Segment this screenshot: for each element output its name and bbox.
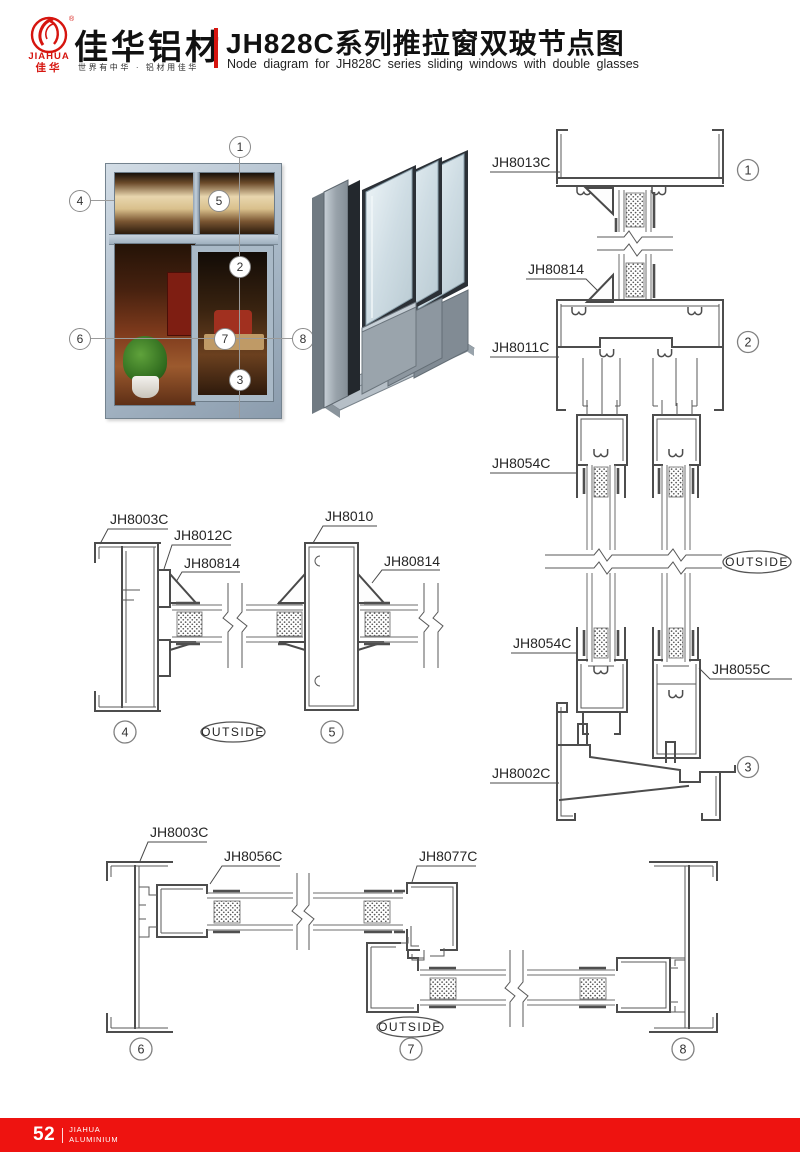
jamb-frame-8 [650, 862, 717, 1032]
svg-text:2: 2 [745, 336, 752, 350]
callout-line-4 [91, 200, 114, 201]
window-pane-bottom-left [114, 243, 196, 406]
outside-label-mid: OUTSIDE [201, 725, 265, 739]
svg-text:8: 8 [680, 1043, 687, 1057]
jiahua-logo-icon: ® JIAHUA 佳华 [22, 10, 78, 76]
company-slogan: 世界有中华 · 铝材用佳华 [78, 62, 199, 73]
label-sash-adapter: JH8012C [174, 527, 232, 543]
label-transom: JH8011C [492, 339, 549, 355]
bottom-horizontal-section-diagram: JH8003C JH8056C JH8077C OUTSIDE 6 7 8 [60, 818, 750, 1068]
label-sash-bottom-right: JH8055C [712, 661, 770, 677]
callout-line-horizontal [91, 338, 292, 339]
vertical-section-labels: JH8013C JH80814 JH8011C JH8054C JH8054C … [490, 154, 792, 783]
glass-unit-top [587, 190, 673, 302]
window-callout-1: 1 [229, 136, 251, 158]
svg-text:7: 7 [408, 1043, 415, 1057]
label-bead-right: JH80814 [384, 553, 440, 569]
logo-brand-cn: 佳华 [36, 61, 63, 74]
sash-top-rails [577, 400, 700, 465]
glass-pane-front [362, 165, 416, 330]
page-title: JH828C系列推拉窗双玻节点图 [226, 22, 625, 62]
window-callout-7: 7 [214, 328, 236, 350]
label-sash-top: JH8054C [492, 455, 550, 471]
vertical-section-diagram: JH8013C JH80814 JH8011C JH8054C JH8054C … [480, 115, 800, 835]
footer-separator [62, 1128, 63, 1143]
svg-text:1: 1 [745, 164, 752, 178]
logo-brand-text: JIAHUA [28, 51, 69, 62]
label-frame-4: JH8003C [110, 511, 168, 527]
glass-run-d [420, 950, 615, 1027]
render-graphic [312, 150, 474, 418]
page-number: 52 [33, 1124, 55, 1146]
catalog-page: ® JIAHUA 佳华 佳华铝材 世界有中华 · 铝材用佳华 JH828C系列推… [0, 0, 800, 1167]
sash-profile-56 [149, 885, 207, 937]
glass-run-c [207, 873, 405, 950]
sash-glass-columns [545, 465, 722, 666]
footer-brand-line2: ALUMINIUM [69, 1135, 118, 1145]
mid-horizontal-section-diagram: JH8003C JH8012C JH80814 JH8010 JH80814 4… [60, 500, 460, 750]
red-cabinet [167, 272, 195, 336]
footer-brand: JIAHUA ALUMINIUM [69, 1125, 118, 1145]
jamb-frame-6 [107, 862, 172, 1032]
footer-brand-line1: JIAHUA [69, 1125, 118, 1135]
window-callout-5: 5 [208, 190, 230, 212]
outside-label-bottom: OUTSIDE [378, 1020, 442, 1034]
label-sill: JH8002C [492, 765, 550, 781]
label-sash-56: JH8056C [224, 848, 282, 864]
label-mullion: JH8010 [325, 508, 373, 524]
transom-profile [557, 300, 723, 410]
window-callout-2: 2 [229, 256, 251, 278]
plant-pot [132, 376, 159, 398]
bottom-section-labels: JH8003C JH8056C JH8077C OUTSIDE 6 7 8 [130, 824, 694, 1060]
page-subtitle: Node diagram for JH828C series sliding w… [227, 57, 639, 71]
sash-bottom-rails [577, 660, 700, 758]
label-sash-bottom: JH8054C [513, 635, 571, 651]
label-interlock-77: JH8077C [419, 848, 477, 864]
label-frame-6: JH8003C [150, 824, 208, 840]
header-divider [214, 28, 218, 68]
svg-text:3: 3 [745, 761, 752, 775]
glass-run-left [172, 583, 303, 668]
page-footer: 52 JIAHUA ALUMINIUM [0, 1118, 800, 1152]
label-top-frame: JH8013C [492, 154, 550, 170]
window-callout-6: 6 [69, 328, 91, 350]
label-bead-left: JH80814 [184, 555, 240, 571]
window-callout-4: 4 [69, 190, 91, 212]
svg-text:4: 4 [122, 726, 129, 740]
svg-text:6: 6 [138, 1043, 145, 1057]
profile-3d-render [302, 150, 487, 418]
label-glazing-bead: JH80814 [528, 261, 584, 277]
window-photo [105, 163, 282, 419]
window-callout-3: 3 [229, 369, 251, 391]
outside-label-vertical: OUTSIDE [725, 555, 789, 569]
sash-box-8 [617, 958, 685, 1012]
window-pane-top-left [114, 172, 195, 236]
svg-text:5: 5 [329, 726, 336, 740]
